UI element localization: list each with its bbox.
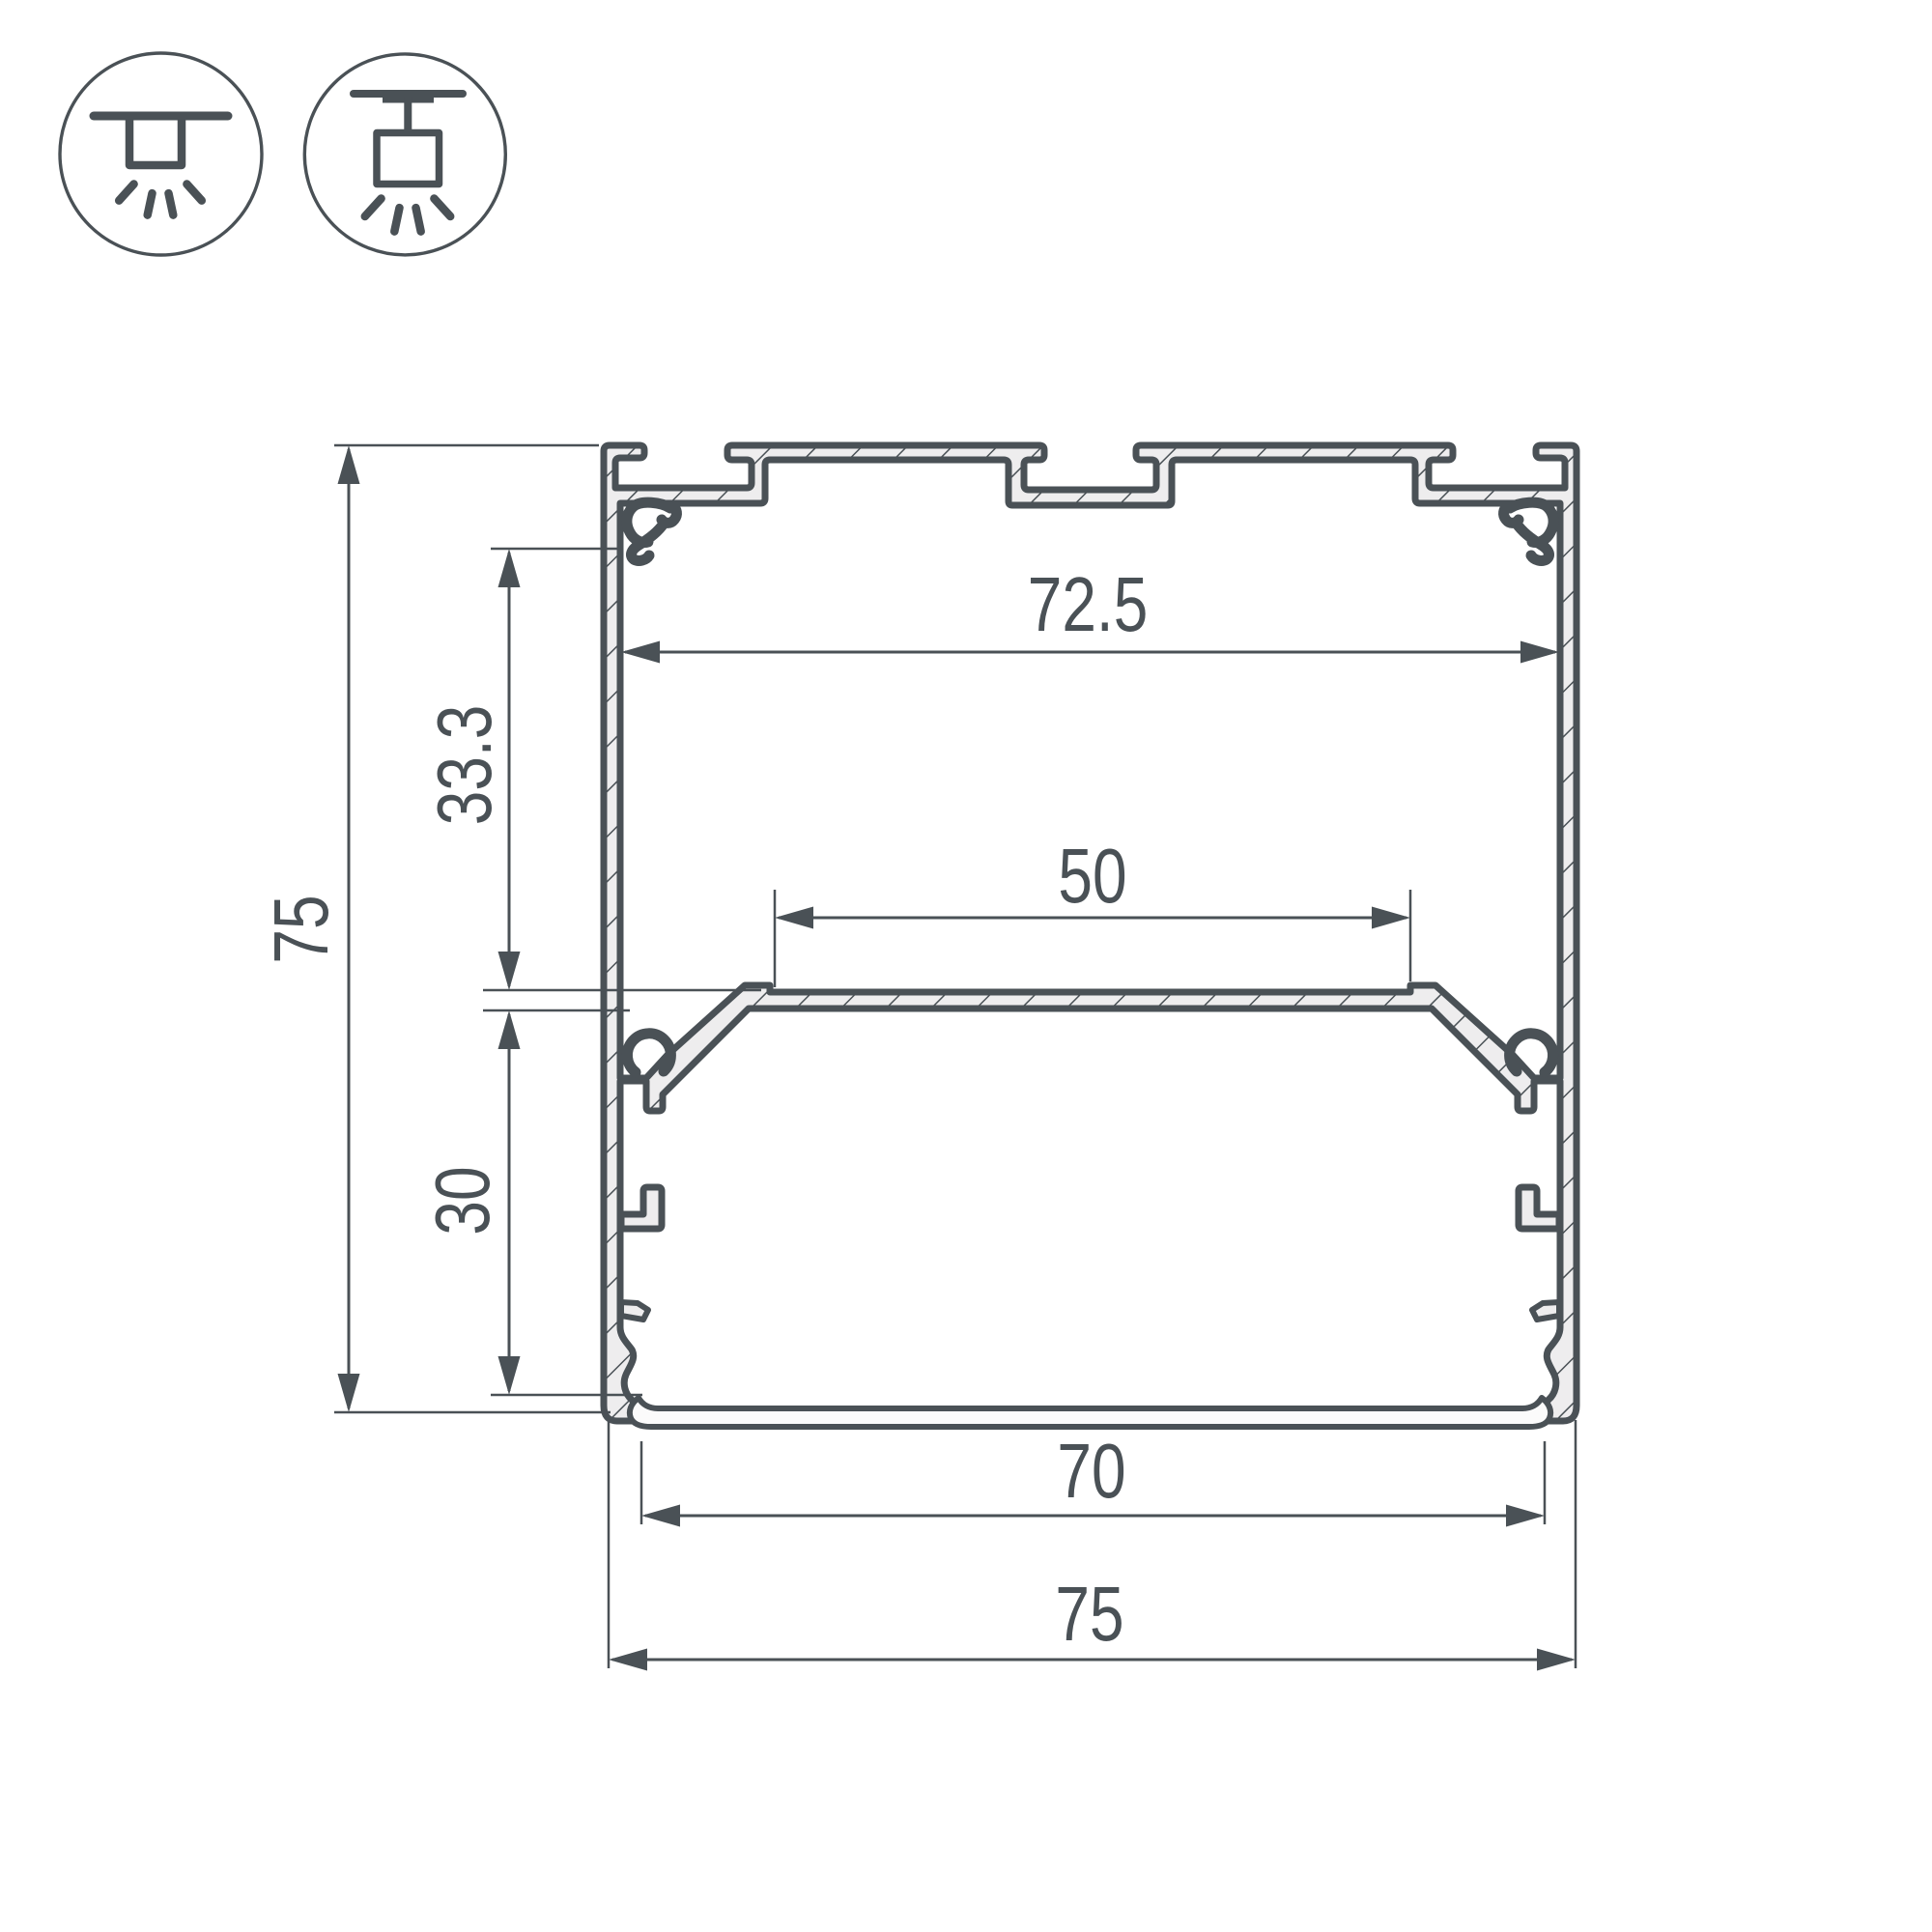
svg-text:75: 75 xyxy=(258,895,344,963)
svg-text:70: 70 xyxy=(1057,1428,1125,1514)
svg-text:75: 75 xyxy=(1055,1571,1123,1657)
svg-text:30: 30 xyxy=(419,1166,505,1235)
svg-text:33.3: 33.3 xyxy=(421,705,507,826)
svg-text:50: 50 xyxy=(1058,833,1126,919)
svg-text:72.5: 72.5 xyxy=(1028,561,1149,647)
